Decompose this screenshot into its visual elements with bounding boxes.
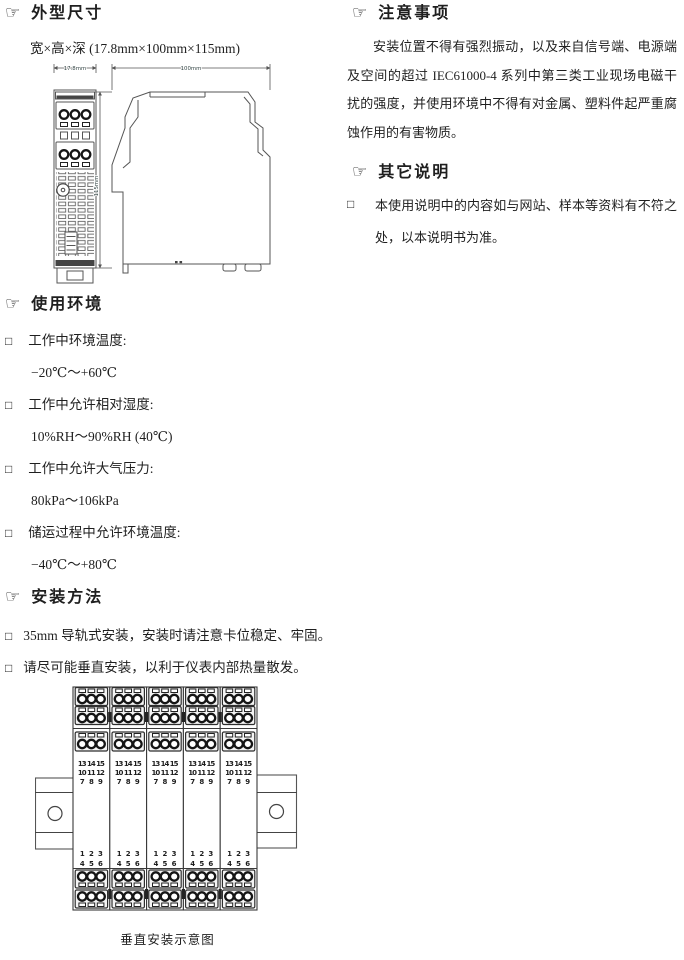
rail-clip [57,268,93,283]
dimensions-subtitle: 宽×高×深 (17.8mm×100mm×115mm) [30,37,240,57]
module-1 [73,687,110,910]
env-item-humidity: □ 工作中允许相对湿度: [5,393,154,413]
installation-diagram: 13 14 15 10 11 12 7 8 9 1 2 3 4 5 6 [35,683,300,928]
module-3 [147,687,184,910]
section-title-precautions: 注意事项 [378,4,450,23]
other-item-text: 本使用说明中的内容如与网站、样本等资料有不符之处，以本说明书为准。 [375,190,677,254]
pointing-hand-icon: ☞ [5,588,20,605]
left-end-bracket [36,778,76,849]
section-header-precautions: ☞ 注意事项 [352,4,450,23]
precautions-body: 安装位置不得有强烈振动，以及来自信号端、电源端及空间的超过 IEC61000-4… [347,33,677,147]
env-item-value: −40℃～+80℃ [31,553,117,573]
bracket-hole [48,807,62,821]
manual-page: ☞ 外型尺寸 宽×高×深 (17.8mm×100mm×115mm) 17.8mm [0,0,684,960]
env-item-label: 工作中允许大气压力: [28,457,153,477]
installation-item-text: 35mm 导轨式安装，安装时请注意卡位稳定、牢固。 [23,624,331,644]
height-dimension-label: 115mm [94,176,100,197]
installation-item-vertical: □ 请尽可能垂直安装，以利于仪表内部热量散发。 [5,656,307,676]
env-item-storage-temperature: □ 储运过程中允许环境温度: [5,521,181,541]
module-4 [183,687,220,910]
section-header-installation: ☞ 安装方法 [5,588,103,607]
env-item-label: 工作中环境温度: [28,329,126,349]
env-item-value: 80kPa～106kPa [31,489,119,509]
checkbox-bullet-icon: □ [5,629,12,644]
right-end-bracket [257,775,297,848]
section-title-dimensions: 外型尺寸 [31,4,103,23]
module-5 [220,687,257,910]
section-header-other: ☞ 其它说明 [352,163,450,182]
checkbox-bullet-icon: □ [5,398,12,413]
checkbox-bullet-icon: □ [5,661,12,676]
env-item-temperature: □ 工作中环境温度: [5,329,127,349]
width-dimension-label: 17.8mm [64,66,87,72]
side-view: 100mm [112,64,270,273]
adjust-knob [57,184,69,196]
env-item-label: 工作中允许相对湿度: [28,393,153,413]
pointing-hand-icon: ☞ [352,4,367,21]
env-item-value: 10%RH～90%RH (40℃) [31,425,172,445]
checkbox-bullet-icon: □ [5,526,12,541]
front-view: 17.8mm [54,64,96,283]
pointing-hand-icon: ☞ [352,163,367,180]
checkbox-bullet-icon: □ [347,197,354,212]
section-title-environment: 使用环境 [31,295,103,314]
checkbox-bullet-icon: □ [5,334,12,349]
checkbox-bullet-icon: □ [5,462,12,477]
depth-dimension-label: 100mm [181,66,202,72]
section-title-installation: 安装方法 [31,588,103,607]
env-item-value: −20℃～+60℃ [31,361,117,381]
module-2 [110,687,147,910]
installation-item-rail: □ 35mm 导轨式安装，安装时请注意卡位稳定、牢固。 [5,624,331,644]
env-item-label: 储运过程中允许环境温度: [28,521,180,541]
diagram-caption: 垂直安装示意图 [35,929,300,948]
pointing-hand-icon: ☞ [5,4,20,21]
section-title-other: 其它说明 [378,163,450,182]
height-dimension: 115mm [94,92,112,268]
bracket-hole [270,805,284,819]
installation-item-text: 请尽可能垂直安装，以利于仪表内部热量散发。 [23,656,307,676]
dimension-drawing: 17.8mm [48,60,280,292]
env-item-pressure: □ 工作中允许大气压力: [5,457,154,477]
section-header-environment: ☞ 使用环境 [5,295,103,314]
pointing-hand-icon: ☞ [5,295,20,312]
section-header-dimensions: ☞ 外型尺寸 [5,4,103,23]
